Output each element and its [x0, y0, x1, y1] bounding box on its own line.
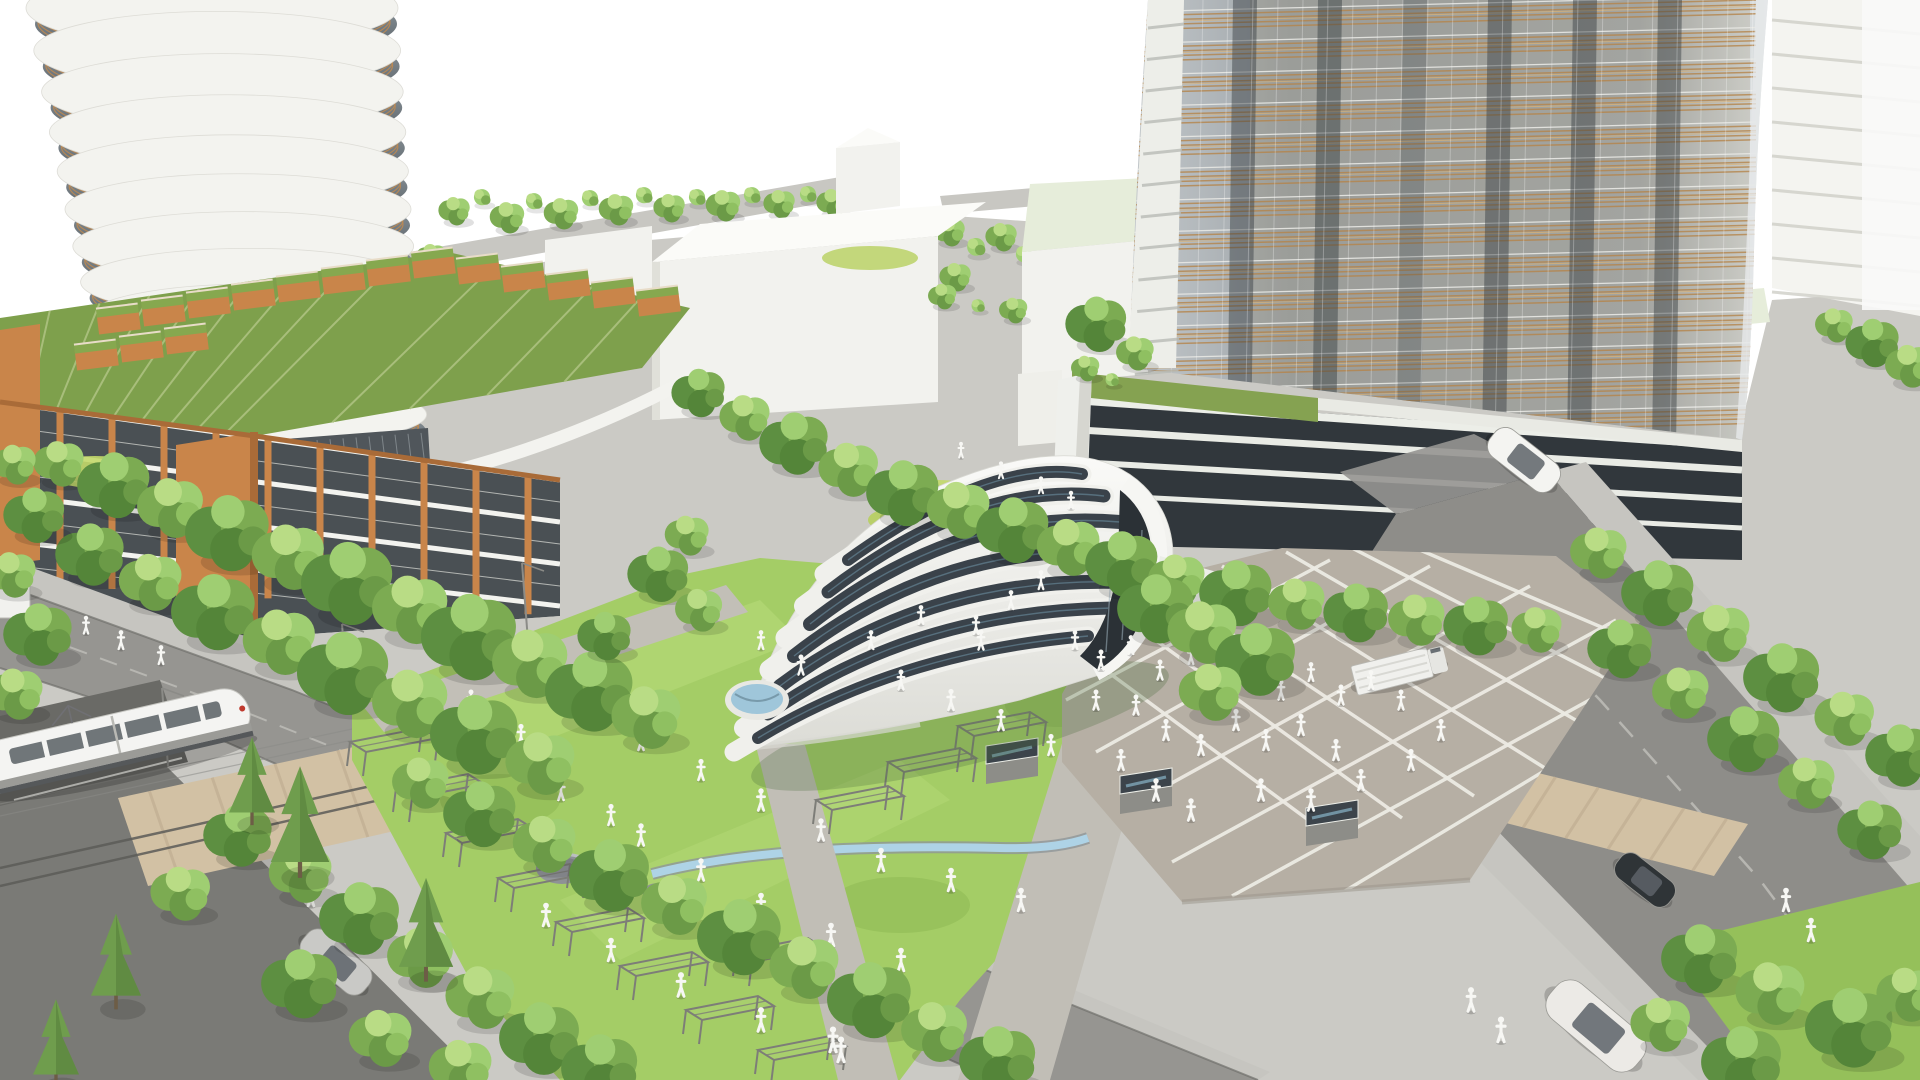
roof-planter [636, 285, 681, 317]
roof-planter [141, 295, 186, 327]
roof-planter [321, 263, 366, 295]
roof-planter [276, 271, 321, 303]
roof-planter [456, 253, 501, 285]
roof-planter [186, 287, 231, 319]
roof-planter [411, 247, 456, 279]
skylight-box [1120, 768, 1172, 814]
roof-planter [96, 303, 141, 335]
round-pool [731, 684, 783, 714]
roof-planter [231, 279, 276, 311]
roof-planter [546, 269, 591, 301]
roof-planter [591, 277, 636, 309]
roof-planter [164, 323, 209, 355]
roof-planter [119, 331, 164, 363]
scene-svg [0, 0, 1920, 1080]
roof-planter [366, 255, 411, 287]
architectural-rendering [0, 0, 1920, 1080]
roof-planter [74, 339, 119, 371]
roof-planter [501, 261, 546, 293]
